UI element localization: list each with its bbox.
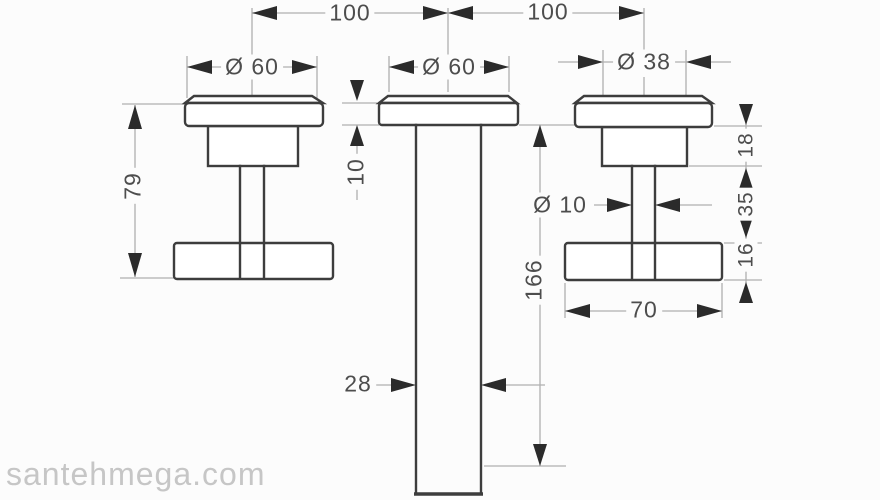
right-handle-figure: [565, 96, 722, 280]
spout-figure: [379, 96, 518, 494]
dim-label-70: 70: [626, 298, 662, 323]
arrow-down-icon: [350, 80, 364, 101]
technical-drawing-canvas: 100 100 Ø 60 Ø 60 Ø 38 79 10 166 Ø 10 28…: [0, 0, 880, 500]
arrow-right-icon: [578, 55, 603, 69]
arrow-down-icon: [128, 253, 142, 277]
left-handle-body: [208, 126, 298, 166]
arrow-right-icon: [423, 6, 448, 20]
dim-label-16: 16: [735, 238, 758, 271]
dim-label-18: 18: [735, 128, 758, 161]
arrow-right-icon: [607, 198, 632, 212]
arrow-down-icon: [739, 104, 753, 125]
dim-label-166: 166: [522, 255, 547, 304]
dim-label-top-left-100: 100: [325, 1, 374, 26]
arrow-left-icon: [252, 6, 277, 20]
arrow-left-icon: [686, 55, 711, 69]
left-handle-figure: [174, 96, 333, 279]
arrow-right-icon: [484, 60, 509, 74]
arrow-down-icon: [533, 444, 547, 466]
arrow-left-icon: [565, 304, 590, 318]
arrow-up-icon: [128, 105, 142, 129]
arrow-right-icon: [619, 6, 644, 20]
top-extension-lines: [252, 8, 644, 96]
arrow-up-icon: [739, 168, 753, 189]
arrow-up-icon: [533, 125, 547, 147]
dim-label-28: 28: [340, 372, 376, 397]
dim-label-79: 79: [121, 168, 146, 204]
right-handle-body: [602, 127, 687, 166]
arrow-left-icon: [448, 6, 473, 20]
left-handle-flange: [185, 103, 323, 126]
arrow-right-icon: [292, 60, 317, 74]
arrow-right-icon: [391, 378, 416, 392]
spout-plate: [379, 103, 518, 125]
arrow-left-icon: [655, 198, 680, 212]
arrow-right-icon: [697, 304, 722, 318]
dim-label-dia-38-right: Ø 38: [613, 50, 675, 75]
spout-tube: [416, 125, 481, 493]
dim-label-35: 35: [735, 187, 758, 220]
right-handle-crossbar: [565, 243, 722, 280]
left-handle-crossbar: [174, 243, 333, 279]
arrow-left-icon: [187, 60, 212, 74]
dim-label-dia-60-center: Ø 60: [418, 55, 480, 80]
dim-label-dia-60-left: Ø 60: [221, 55, 283, 80]
dim-label-dia-10: Ø 10: [529, 193, 591, 218]
dim-label-top-right-100: 100: [523, 0, 572, 25]
right-handle-flange: [575, 103, 712, 127]
watermark-text: santehmega.com: [6, 458, 265, 490]
arrow-left-icon: [389, 60, 414, 74]
arrow-left-icon: [481, 378, 506, 392]
arrow-up-icon: [350, 125, 364, 146]
dim-label-10: 10: [344, 154, 369, 190]
arrow-up-icon: [739, 282, 753, 303]
